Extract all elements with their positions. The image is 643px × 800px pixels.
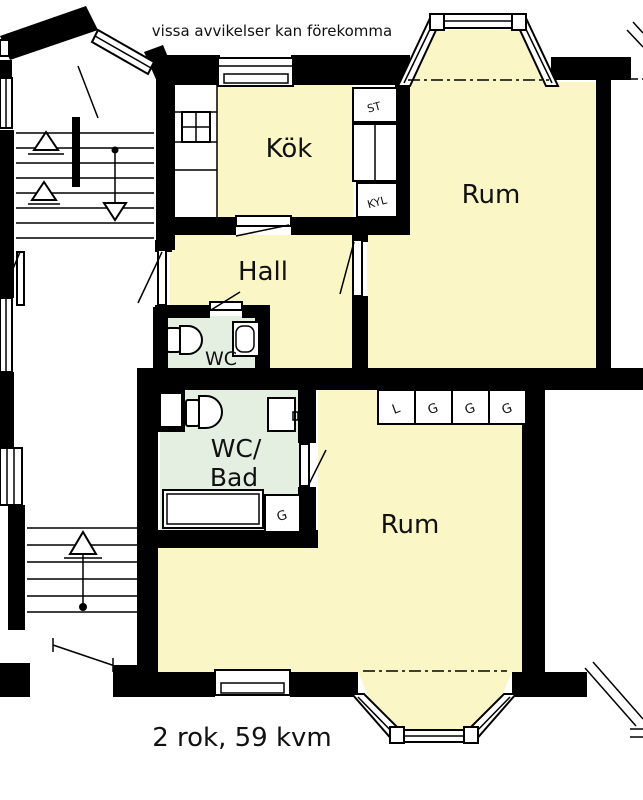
central-wall-band	[137, 368, 643, 390]
wc-bath-right-wall-top	[298, 390, 316, 443]
facade-window-upper	[0, 78, 12, 128]
wc-toilet	[167, 326, 202, 354]
diagonal-wall-window	[0, 40, 9, 56]
stairwell-bottom-wall-right	[113, 665, 137, 697]
lower-room-right-wall	[522, 390, 545, 672]
wc-bath-label-line2: Bad	[210, 463, 258, 492]
bathtub	[163, 490, 263, 528]
stairwell-left-wall-c	[0, 372, 14, 448]
kitchen-window	[218, 58, 293, 86]
unit-size-label: 2 rok, 59 kvm	[152, 723, 332, 753]
upper-room-right-wall	[596, 57, 611, 368]
stair-divider-wall	[72, 117, 80, 187]
kitchen-counter	[175, 85, 217, 217]
kitchen-top-wall-right	[291, 55, 410, 85]
stairwell-bottom-wall-left	[0, 663, 30, 697]
disclaimer-text: vissa avvikelser kan förekomma	[152, 22, 392, 40]
closet-bottom-wall	[345, 217, 410, 235]
pantry-closet	[353, 124, 397, 181]
wc-bath-label-line1: WC/	[211, 434, 262, 463]
stairwell-left-wall-a	[0, 60, 12, 78]
lower-wall-window	[215, 670, 290, 695]
apartment-left-wall	[137, 373, 158, 697]
facade-window-mid	[0, 298, 12, 372]
facade-window-lower	[0, 448, 22, 505]
top-right-wall	[551, 57, 631, 80]
kitchen-bottom-wall-left	[156, 217, 236, 235]
shaft	[160, 393, 182, 427]
wc-label: WC	[205, 348, 237, 370]
hall-room-wall	[352, 296, 368, 372]
stairwell-left-wall-d	[8, 505, 25, 630]
floor-plan-page: vissa avvikelser kan förekomma Kök Rum H…	[0, 0, 643, 800]
kitchen-label: Kök	[266, 134, 313, 164]
hall-label: Hall	[238, 257, 288, 287]
lower-room-label: Rum	[381, 510, 440, 540]
bottom-wall-mid	[290, 672, 358, 697]
bottom-wall-right	[512, 672, 587, 697]
upper-room-label: Rum	[462, 180, 521, 210]
wc-top-wall-left	[155, 305, 210, 318]
kitchen-bottom-wall-right	[291, 217, 352, 235]
floor-plan: vissa avvikelser kan förekomma Kök Rum H…	[0, 0, 643, 800]
bath-sink	[268, 398, 298, 431]
kitchen-top-wall-left	[156, 55, 220, 87]
bottom-wall-left	[137, 672, 215, 697]
bath-toilet	[186, 396, 222, 428]
kitchen-sink	[182, 112, 210, 142]
